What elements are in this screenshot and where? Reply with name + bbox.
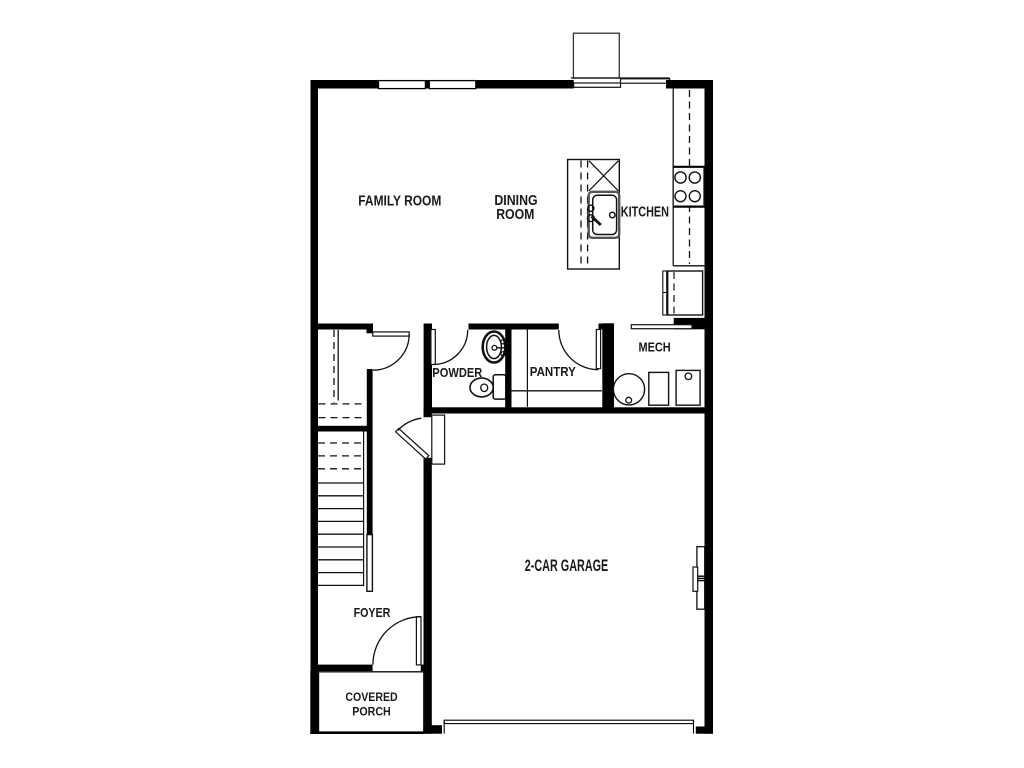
svg-text:KITCHEN: KITCHEN — [621, 204, 669, 221]
svg-text:FOYER: FOYER — [354, 605, 391, 620]
svg-text:ROOM: ROOM — [496, 206, 534, 223]
svg-text:MECH: MECH — [639, 341, 671, 355]
svg-text:2-CAR GARAGE: 2-CAR GARAGE — [525, 556, 609, 575]
svg-text:PORCH: PORCH — [352, 704, 391, 718]
svg-text:POWDER: POWDER — [432, 365, 482, 380]
svg-text:FAMILY ROOM: FAMILY ROOM — [358, 193, 441, 210]
svg-text:PANTRY: PANTRY — [530, 364, 576, 379]
svg-text:COVERED: COVERED — [345, 690, 398, 704]
